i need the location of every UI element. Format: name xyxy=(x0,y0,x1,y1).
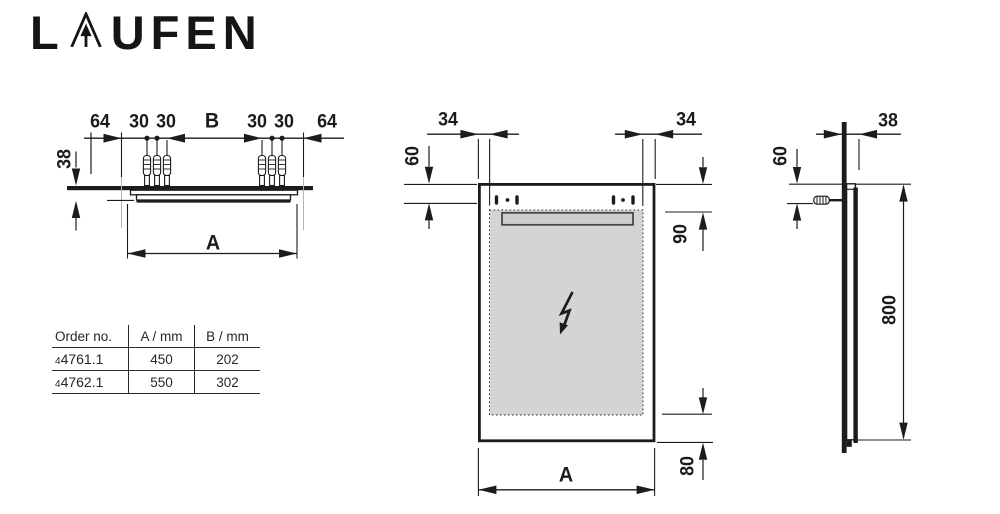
arrow-left-icon xyxy=(304,134,322,143)
arrow-left-icon xyxy=(655,130,673,139)
drawing-canvas xyxy=(0,0,1000,514)
col-header-order-no: Order no. xyxy=(52,325,129,348)
anchor-icon-side xyxy=(814,196,842,204)
b-mm-cell: 202 xyxy=(195,348,261,371)
arrow-up-icon xyxy=(72,201,80,218)
anchor-icon xyxy=(258,140,265,186)
arrow-left-icon xyxy=(128,249,146,258)
arrow-up-icon xyxy=(793,203,801,220)
table-row: 44761.1 450 202 xyxy=(52,348,260,371)
a-mm-cell: 450 xyxy=(129,348,195,371)
dim-label-30: 30 xyxy=(129,113,149,132)
arrow-up-icon xyxy=(899,184,907,201)
dim-label-90: 90 xyxy=(672,224,691,244)
arrow-down-icon xyxy=(72,169,80,186)
arrow-down-icon xyxy=(793,167,801,184)
dim-label-64-right: 64 xyxy=(317,113,337,132)
arrow-right-icon xyxy=(637,486,655,495)
arrow-down-icon xyxy=(699,397,707,414)
side-view xyxy=(787,122,911,453)
anchor-icon xyxy=(278,140,285,186)
arrow-right-icon xyxy=(244,134,262,143)
dim-label-b: B xyxy=(205,111,219,132)
arrow-up-icon xyxy=(699,212,707,229)
arrow-down-icon xyxy=(699,167,707,184)
dim-label-a-front-view: A xyxy=(559,465,573,486)
mounting-frame-top xyxy=(131,190,298,201)
col-header-b-mm: B / mm xyxy=(195,325,261,348)
dim-label-38-side: 38 xyxy=(878,112,898,131)
order-no-cell: 44761.1 xyxy=(52,348,129,371)
technical-drawing-page: L UFEN xyxy=(0,0,1000,514)
table-header-row: Order no. A / mm B / mm xyxy=(52,325,260,348)
wall-anchors-top xyxy=(143,140,285,186)
top-dim-38 xyxy=(72,152,134,231)
dim-label-38-top-view: 38 xyxy=(56,149,75,169)
dim-label-64-left: 64 xyxy=(90,113,110,132)
dim-label-30: 30 xyxy=(247,113,267,132)
light-fixture-bar xyxy=(502,213,633,225)
arrow-right-icon xyxy=(279,249,297,258)
arrow-right-icon xyxy=(824,130,842,139)
arrow-right-icon xyxy=(460,130,478,139)
b-mm-cell: 302 xyxy=(195,371,261,394)
dim-label-60-front: 60 xyxy=(404,146,423,166)
anchor-icon xyxy=(143,140,150,186)
arrow-left-icon xyxy=(167,134,185,143)
table-row: 44762.1 550 302 xyxy=(52,371,260,394)
front-view xyxy=(404,130,713,496)
dim-label-34-right: 34 xyxy=(676,111,696,130)
mirror-profile-side xyxy=(847,184,858,447)
top-dimension-chain xyxy=(84,133,344,231)
dim-label-30: 30 xyxy=(274,113,294,132)
anchor-icon xyxy=(268,140,275,186)
arrow-left-icon xyxy=(859,130,877,139)
col-header-a-mm: A / mm xyxy=(129,325,195,348)
arrow-up-icon xyxy=(425,203,433,220)
dim-label-34-left: 34 xyxy=(438,111,458,130)
dim-label-800: 800 xyxy=(881,295,900,325)
dim-label-a-top-view: A xyxy=(206,233,220,254)
order-number: 4762.1 xyxy=(61,374,104,390)
anchor-icon xyxy=(153,140,160,186)
order-no-cell: 44762.1 xyxy=(52,371,129,394)
side-dim-38 xyxy=(816,130,901,170)
order-number: 4761.1 xyxy=(61,351,104,367)
wall-line xyxy=(842,122,847,453)
anchor-icon xyxy=(163,140,170,186)
a-mm-cell: 550 xyxy=(129,371,195,394)
arrow-left-icon xyxy=(478,486,496,495)
arrow-left-icon xyxy=(490,130,508,139)
dim-label-80: 80 xyxy=(679,456,698,476)
arrow-down-icon xyxy=(899,423,907,440)
arrow-up-icon xyxy=(699,443,707,460)
arrow-down-icon xyxy=(425,167,433,184)
arrow-right-icon xyxy=(104,134,122,143)
arrow-right-icon xyxy=(625,130,643,139)
order-table: Order no. A / mm B / mm 44761.1 450 202 … xyxy=(52,325,260,394)
dim-label-30: 30 xyxy=(156,113,176,132)
dim-label-60-side: 60 xyxy=(772,146,791,166)
